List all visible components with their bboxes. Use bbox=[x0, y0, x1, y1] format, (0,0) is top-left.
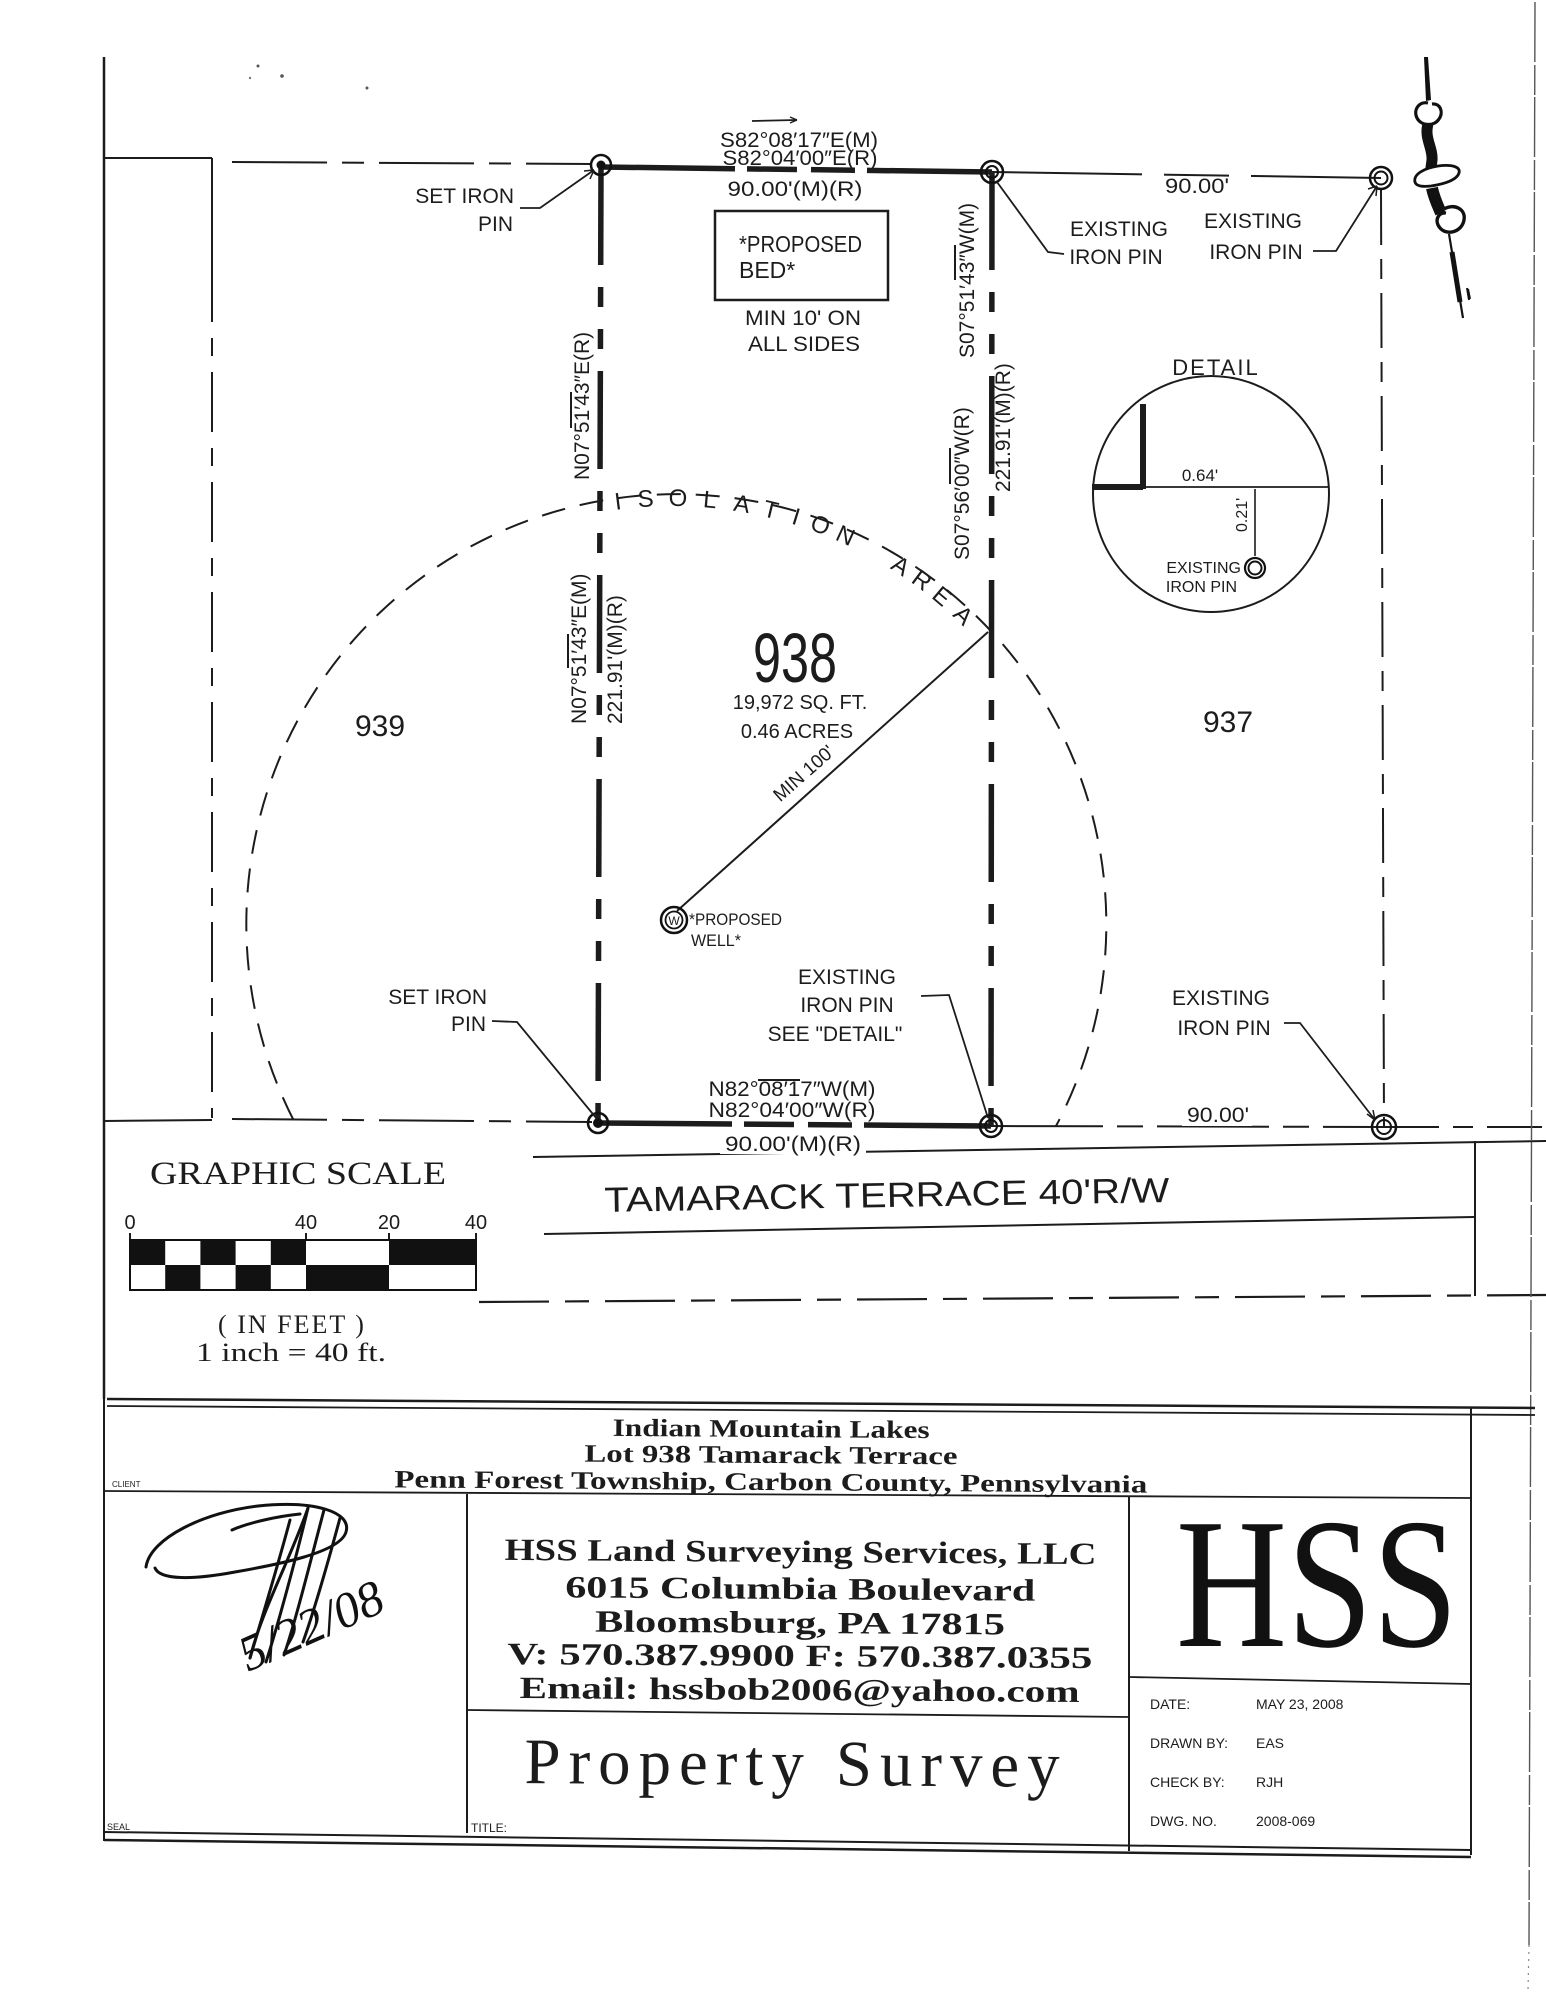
svg-text:O: O bbox=[668, 485, 687, 512]
svg-text:L: L bbox=[702, 486, 718, 514]
svg-text:WELL*: WELL* bbox=[691, 931, 741, 950]
svg-text:SEAL: SEAL bbox=[107, 1822, 130, 1832]
svg-text:939: 939 bbox=[355, 710, 405, 743]
svg-text:DWG. NO.: DWG. NO. bbox=[1150, 1813, 1217, 1829]
svg-text:CLIENT: CLIENT bbox=[112, 1480, 141, 1489]
svg-text:Lot 938 Tamarack Terrace: Lot 938 Tamarack Terrace bbox=[584, 1441, 957, 1471]
svg-text:40: 40 bbox=[465, 1212, 487, 1234]
svg-text:19,972 SQ. FT.: 19,972 SQ. FT. bbox=[733, 692, 868, 714]
svg-text:TITLE:: TITLE: bbox=[471, 1821, 507, 1835]
svg-text:IRON PIN: IRON PIN bbox=[1069, 246, 1162, 269]
svg-text:90.00': 90.00' bbox=[1187, 1104, 1249, 1127]
svg-text:90.00'(M)(R): 90.00'(M)(R) bbox=[728, 178, 863, 201]
svg-text:S07°51′43″W(M): S07°51′43″W(M) bbox=[956, 203, 979, 358]
svg-text:SET IRON: SET IRON bbox=[415, 185, 514, 208]
svg-text:IRON PIN: IRON PIN bbox=[1209, 241, 1302, 264]
svg-text:N07°51′43″E(R): N07°51′43″E(R) bbox=[571, 332, 594, 480]
svg-text:0: 0 bbox=[124, 1212, 135, 1234]
svg-text:PIN: PIN bbox=[451, 1013, 486, 1036]
svg-text:GRAPHIC SCALE: GRAPHIC SCALE bbox=[150, 1156, 446, 1192]
svg-text:90.00'(M)(R): 90.00'(M)(R) bbox=[725, 1133, 861, 1156]
svg-text:DRAWN BY:: DRAWN BY: bbox=[1150, 1735, 1228, 1751]
svg-text:IRON PIN: IRON PIN bbox=[800, 994, 893, 1017]
svg-text:0.64': 0.64' bbox=[1182, 466, 1218, 485]
svg-text:RJH: RJH bbox=[1256, 1774, 1283, 1790]
svg-text:1 inch = 40 ft.: 1 inch = 40 ft. bbox=[196, 1338, 386, 1367]
svg-text:Property Survey: Property Survey bbox=[524, 1726, 1067, 1802]
svg-text:EXISTING: EXISTING bbox=[1166, 560, 1241, 577]
svg-text:S07°56′00″W(R): S07°56′00″W(R) bbox=[951, 407, 974, 560]
svg-text:Indian Mountain Lakes: Indian Mountain Lakes bbox=[613, 1415, 931, 1444]
svg-text:( IN FEET ): ( IN FEET ) bbox=[218, 1310, 366, 1339]
svg-text:V: 570.387.9900 F: 570.387.035: V: 570.387.9900 F: 570.387.0355 bbox=[507, 1636, 1092, 1675]
svg-text:Penn Forest Township, Carbon C: Penn Forest Township, Carbon County, Pen… bbox=[394, 1466, 1148, 1498]
svg-text:40: 40 bbox=[295, 1212, 317, 1234]
svg-text:W: W bbox=[668, 914, 680, 928]
svg-text:S: S bbox=[637, 485, 655, 513]
svg-text:BED*: BED* bbox=[739, 257, 795, 283]
svg-text:2008-069: 2008-069 bbox=[1256, 1813, 1315, 1829]
svg-text:20: 20 bbox=[378, 1212, 400, 1234]
svg-text:EXISTING: EXISTING bbox=[1172, 987, 1270, 1010]
svg-text:N07°51′43″E(M): N07°51′43″E(M) bbox=[568, 574, 591, 725]
svg-text:221.91'(M)(R): 221.91'(M)(R) bbox=[604, 595, 627, 724]
svg-text:90.00': 90.00' bbox=[1165, 175, 1229, 198]
svg-text:HSS: HSS bbox=[1176, 1481, 1458, 1687]
svg-text:0.21': 0.21' bbox=[1234, 498, 1251, 532]
svg-text:EAS: EAS bbox=[1256, 1735, 1284, 1751]
svg-text:MAY 23, 2008: MAY 23, 2008 bbox=[1256, 1696, 1344, 1712]
svg-text:0.46 ACRES: 0.46 ACRES bbox=[741, 721, 853, 743]
svg-text:937: 937 bbox=[1203, 706, 1253, 739]
svg-text:*PROPOSED: *PROPOSED bbox=[689, 910, 782, 929]
svg-text:N82°08′17″W(M): N82°08′17″W(M) bbox=[709, 1078, 876, 1101]
svg-text:221.91'(M)(R): 221.91'(M)(R) bbox=[992, 363, 1015, 492]
svg-text:MIN 10' ON: MIN 10' ON bbox=[745, 307, 861, 330]
svg-text:*PROPOSED: *PROPOSED bbox=[739, 231, 862, 257]
svg-text:Email: hssbob2006@yahoo.com: Email: hssbob2006@yahoo.com bbox=[519, 1670, 1079, 1709]
svg-text:PIN: PIN bbox=[478, 213, 513, 236]
svg-text:S82°04′00″E(R): S82°04′00″E(R) bbox=[723, 147, 878, 170]
svg-text:938: 938 bbox=[753, 619, 837, 697]
svg-text:SET IRON: SET IRON bbox=[388, 986, 487, 1009]
svg-text:DATE:: DATE: bbox=[1150, 1696, 1190, 1712]
svg-text:EXISTING: EXISTING bbox=[1070, 218, 1168, 241]
svg-text:6015 Columbia Boulevard: 6015 Columbia Boulevard bbox=[565, 1569, 1035, 1607]
svg-text:CHECK BY:: CHECK BY: bbox=[1150, 1774, 1225, 1790]
svg-text:IRON PIN: IRON PIN bbox=[1166, 579, 1237, 596]
svg-text:ALL SIDES: ALL SIDES bbox=[748, 333, 860, 356]
svg-text:HSS Land Surveying Services, L: HSS Land Surveying Services, LLC bbox=[504, 1532, 1096, 1571]
svg-text:EXISTING: EXISTING bbox=[798, 966, 896, 989]
svg-text:EXISTING: EXISTING bbox=[1204, 210, 1302, 233]
svg-text:N82°04′00″W(R): N82°04′00″W(R) bbox=[709, 1099, 876, 1122]
svg-text:Bloomsburg, PA 17815: Bloomsburg, PA 17815 bbox=[595, 1604, 1005, 1642]
svg-text:SEE "DETAIL": SEE "DETAIL" bbox=[768, 1023, 903, 1046]
svg-text:IRON PIN: IRON PIN bbox=[1177, 1017, 1270, 1040]
